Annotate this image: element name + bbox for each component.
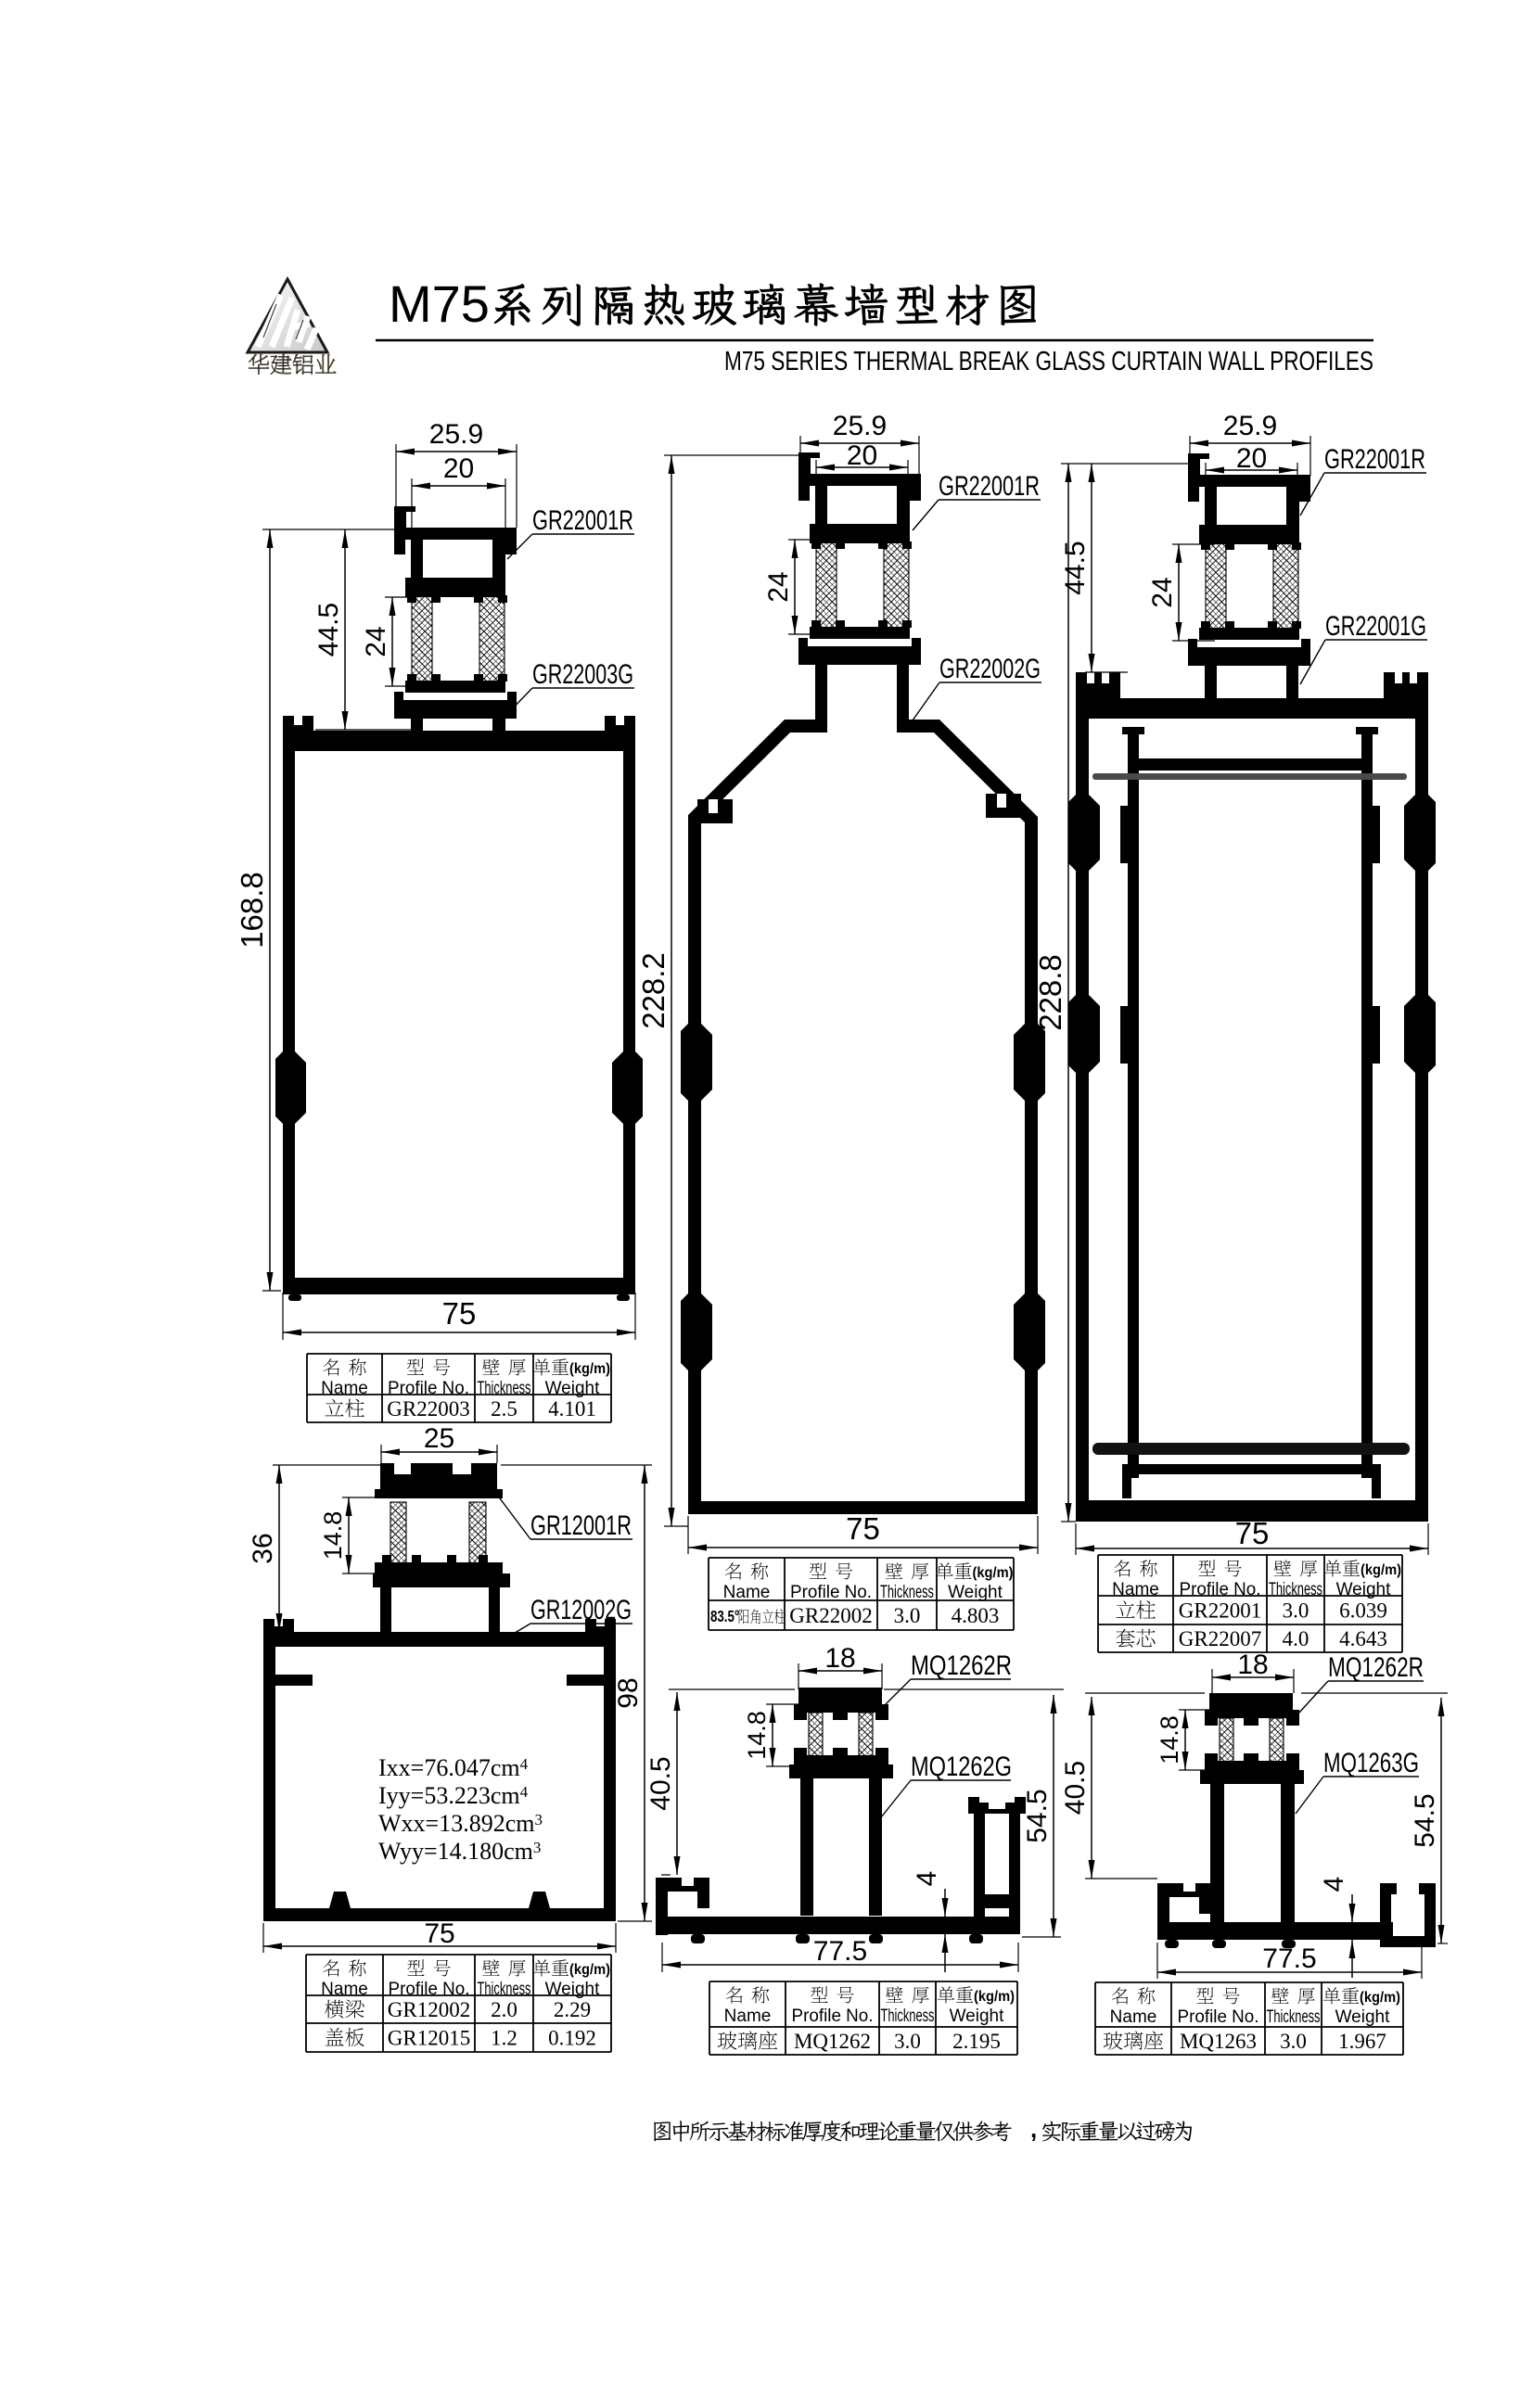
- svg-text:(kg/m): (kg/m): [569, 1962, 610, 1978]
- svg-text:,: ,: [1030, 2115, 1037, 2143]
- svg-text:(kg/m): (kg/m): [974, 1989, 1015, 2005]
- svg-text:40.5: 40.5: [645, 1756, 676, 1810]
- svg-text:3.0: 3.0: [1280, 2030, 1307, 2053]
- svg-text:Weight: Weight: [1336, 1580, 1392, 1599]
- svg-text:Profile No.: Profile No.: [1178, 2007, 1259, 2027]
- svg-text:Ixx=76.047cm4: Ixx=76.047cm4: [378, 1754, 529, 1781]
- svg-text:MQ1262R: MQ1262R: [1328, 1652, 1424, 1683]
- svg-text:Profile No.: Profile No.: [388, 1379, 469, 1398]
- svg-text:14.8: 14.8: [1156, 1715, 1183, 1765]
- svg-text:(kg/m): (kg/m): [1361, 1562, 1401, 1578]
- svg-text:4.643: 4.643: [1339, 1627, 1387, 1650]
- svg-text:2.195: 2.195: [952, 2030, 1001, 2053]
- svg-text:Name: Name: [1112, 1580, 1159, 1599]
- svg-text:MQ1262: MQ1262: [794, 2030, 871, 2053]
- svg-text:GR22003G: GR22003G: [532, 659, 633, 690]
- svg-text:Wyy=14.180cm3: Wyy=14.180cm3: [378, 1838, 541, 1865]
- svg-text:3.0: 3.0: [894, 2030, 921, 2053]
- svg-text:Name: Name: [321, 1379, 368, 1398]
- svg-text:2.5: 2.5: [491, 1397, 517, 1421]
- svg-text:Weight: Weight: [948, 1583, 1003, 1602]
- svg-text:Name: Name: [723, 1583, 771, 1602]
- svg-text:98: 98: [613, 1677, 644, 1708]
- svg-text:Thickness: Thickness: [881, 2007, 935, 2026]
- svg-text:M75: M75: [389, 274, 490, 333]
- svg-text:GR12002: GR12002: [388, 1998, 470, 2021]
- svg-text:(kg/m): (kg/m): [569, 1361, 610, 1377]
- svg-text:2.0: 2.0: [491, 1998, 517, 2021]
- svg-text:77.5: 77.5: [1262, 1943, 1316, 1974]
- svg-text:Profile No.: Profile No.: [1180, 1580, 1261, 1599]
- svg-text:Name: Name: [321, 1980, 368, 1999]
- svg-text:3.0: 3.0: [1283, 1599, 1309, 1623]
- svg-text:GR22007: GR22007: [1179, 1627, 1261, 1650]
- svg-text:Wxx=13.892cm3: Wxx=13.892cm3: [378, 1810, 543, 1837]
- svg-text:Thickness: Thickness: [478, 1379, 531, 1398]
- svg-text:M75 SERIES THERMAL BREAK GLASS: M75 SERIES THERMAL BREAK GLASS CURTAIN W…: [724, 347, 1373, 376]
- svg-text:(kg/m): (kg/m): [973, 1565, 1014, 1581]
- svg-text:0.192: 0.192: [548, 2027, 596, 2050]
- svg-text:GR22001: GR22001: [1179, 1599, 1261, 1623]
- svg-text:1.2: 1.2: [491, 2027, 517, 2050]
- svg-text:4.101: 4.101: [548, 1397, 596, 1421]
- svg-text:4.0: 4.0: [1283, 1627, 1309, 1650]
- svg-text:MQ1263: MQ1263: [1180, 2030, 1257, 2053]
- svg-text:24: 24: [763, 571, 794, 602]
- svg-text:6.039: 6.039: [1339, 1599, 1387, 1623]
- svg-text:83.5°: 83.5°: [710, 1608, 739, 1625]
- svg-text:14.8: 14.8: [743, 1711, 771, 1760]
- svg-text:228.8: 228.8: [1033, 954, 1067, 1031]
- svg-text:25.9: 25.9: [833, 411, 887, 441]
- svg-text:75: 75: [424, 1918, 454, 1949]
- svg-text:Profile No.: Profile No.: [792, 2007, 874, 2026]
- svg-text:25: 25: [424, 1423, 454, 1454]
- svg-text:20: 20: [1236, 443, 1267, 474]
- svg-text:54.5: 54.5: [1410, 1793, 1440, 1847]
- svg-text:MQ1263G: MQ1263G: [1323, 1748, 1419, 1778]
- svg-text:GR22002: GR22002: [789, 1604, 872, 1627]
- svg-text:20: 20: [847, 440, 877, 471]
- svg-text:Thickness: Thickness: [1269, 1580, 1322, 1599]
- svg-text:Profile No.: Profile No.: [790, 1583, 872, 1602]
- svg-text:24: 24: [361, 626, 391, 656]
- svg-text:GR22003: GR22003: [387, 1397, 469, 1421]
- svg-text:GR22001R: GR22001R: [1324, 444, 1425, 475]
- svg-text:24: 24: [1147, 577, 1178, 607]
- svg-text:Name: Name: [1110, 2007, 1157, 2027]
- svg-text:75: 75: [442, 1296, 477, 1331]
- svg-text:25.9: 25.9: [429, 419, 483, 450]
- svg-text:18: 18: [1237, 1650, 1268, 1680]
- svg-text:4.803: 4.803: [952, 1604, 1000, 1627]
- svg-text:2.29: 2.29: [554, 1998, 591, 2021]
- svg-text:25.9: 25.9: [1223, 411, 1277, 441]
- svg-text:1.967: 1.967: [1338, 2030, 1386, 2053]
- svg-text:Thickness: Thickness: [1267, 2007, 1321, 2027]
- svg-text:Name: Name: [724, 2007, 772, 2026]
- svg-text:54.5: 54.5: [1022, 1789, 1053, 1842]
- svg-text:36: 36: [248, 1533, 278, 1563]
- svg-text:Profile No.: Profile No.: [389, 1980, 470, 1999]
- svg-text:40.5: 40.5: [1060, 1761, 1091, 1815]
- svg-text:Weight: Weight: [1335, 2007, 1391, 2027]
- svg-text:44.5: 44.5: [313, 603, 344, 656]
- svg-text:4: 4: [912, 1871, 942, 1887]
- svg-text:Weight: Weight: [545, 1980, 601, 1999]
- svg-text:44.5: 44.5: [1060, 541, 1091, 594]
- svg-text:Weight: Weight: [950, 2007, 1005, 2026]
- svg-text:GR22001R: GR22001R: [532, 505, 633, 536]
- svg-text:75: 75: [1235, 1516, 1270, 1550]
- svg-text:Iyy=53.223cm4: Iyy=53.223cm4: [378, 1782, 529, 1809]
- svg-text:3.0: 3.0: [894, 1604, 921, 1627]
- svg-text:GR12015: GR12015: [388, 2027, 470, 2050]
- svg-text:GR22002G: GR22002G: [939, 654, 1041, 684]
- svg-text:168.8: 168.8: [235, 872, 269, 949]
- svg-text:GR22001G: GR22001G: [1325, 611, 1426, 642]
- svg-text:GR12002G: GR12002G: [530, 1595, 632, 1625]
- svg-text:20: 20: [443, 453, 474, 484]
- svg-text:(kg/m): (kg/m): [1360, 1990, 1400, 2006]
- svg-text:14.8: 14.8: [319, 1511, 347, 1561]
- svg-text:GR22001R: GR22001R: [939, 471, 1040, 502]
- svg-text:Thickness: Thickness: [478, 1980, 531, 1999]
- svg-text:MQ1262G: MQ1262G: [911, 1752, 1012, 1782]
- svg-text:228.2: 228.2: [636, 952, 671, 1029]
- svg-text:MQ1262R: MQ1262R: [911, 1650, 1012, 1681]
- svg-text:Thickness: Thickness: [880, 1583, 934, 1602]
- svg-text:Weight: Weight: [545, 1379, 601, 1398]
- svg-text:18: 18: [824, 1643, 855, 1674]
- svg-text:77.5: 77.5: [813, 1936, 867, 1967]
- svg-text:4: 4: [1319, 1877, 1349, 1892]
- svg-text:75: 75: [846, 1511, 880, 1546]
- svg-text:GR12001R: GR12001R: [530, 1510, 632, 1541]
